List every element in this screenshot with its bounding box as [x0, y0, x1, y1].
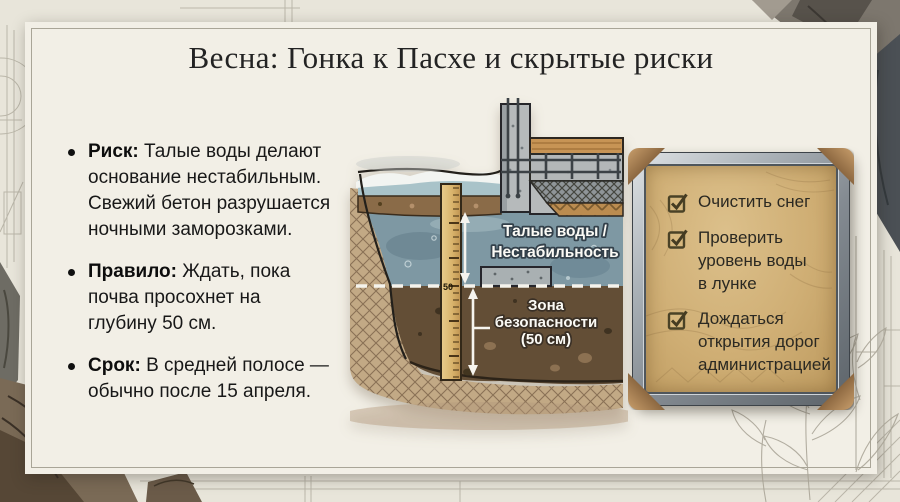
bullet-risk-line: Талые воды делают — [144, 141, 321, 162]
bullet-dot — [68, 149, 75, 156]
checkbox-checked-icon — [666, 227, 689, 250]
bullet-rule-line: глубину 50 см. — [88, 313, 216, 334]
bullet-risk-label: Риск: — [88, 141, 139, 162]
ruler-mark-50: 50 — [443, 282, 453, 292]
soil-pit — [390, 286, 623, 384]
zone-label-line2: безопасности — [495, 314, 598, 331]
ice-band — [356, 156, 502, 198]
bullet-list: Риск: Талые воды делают основание нестаб… — [64, 139, 356, 421]
water-label-line2: Нестабильность — [491, 244, 618, 261]
soil-cross-section-diagram: 50 Талые воды / Нестабильность Зона безо… — [350, 96, 628, 440]
checkbox-checked-icon — [666, 191, 689, 214]
checkbox-checked-icon — [666, 308, 689, 331]
check-label: Дождаться открытия дорог администрацией — [698, 307, 831, 376]
bullet-dot — [68, 363, 75, 370]
ground-soft-edge — [350, 402, 628, 430]
bullet-risk-line: ночными заморозками. — [88, 219, 292, 240]
slide-title: Весна: Гонка к Пасхе и скрытые риски — [25, 40, 877, 76]
checklist-plaque: Очистить снег Проверить уровень воды в л… — [632, 152, 850, 406]
water-label-line1: Талые воды / — [503, 223, 608, 240]
concrete-slab — [530, 154, 623, 181]
slide: Весна: Гонка к Пасхе и скрытые риски Рис… — [0, 0, 900, 502]
zone-label-line3: (50 см) — [521, 331, 571, 348]
check-label: Очистить снег — [698, 190, 810, 214]
bullet-risk-line: основание нестабильным. — [88, 167, 321, 188]
foundation-structure — [501, 98, 623, 216]
bullet-term-line: обычно после 15 апреля. — [88, 381, 311, 402]
check-item-water-level: Проверить уровень воды в лунке — [666, 226, 830, 295]
gravel-layer — [530, 181, 623, 203]
check-item-roads: Дождаться открытия дорог администрацией — [666, 307, 830, 376]
bullet-risk-line: Свежий бетон разрушается — [88, 193, 330, 214]
checklist: Очистить снег Проверить уровень воды в л… — [666, 190, 830, 388]
zone-label-line1: Зона — [528, 297, 565, 314]
ruler: 50 — [441, 184, 461, 380]
concrete-footing — [481, 267, 551, 286]
bullet-dot — [68, 269, 75, 276]
wood-plank — [530, 138, 623, 154]
check-label: Проверить уровень воды в лунке — [698, 226, 807, 295]
bullet-rule-label: Правило: — [88, 261, 177, 282]
bullet-rule-line: почва просохнет на — [88, 287, 261, 308]
bullet-term-line: В средней полосе — — [146, 355, 329, 376]
parchment-panel: Очистить снег Проверить уровень воды в л… — [646, 166, 836, 392]
bullet-term-label: Срок: — [88, 355, 141, 376]
bullet-rule: Правило: Ждать, пока почва просохнет на … — [64, 259, 356, 337]
herringbone-wood-strip — [547, 203, 623, 216]
check-item-snow: Очистить снег — [666, 190, 830, 214]
bullet-risk: Риск: Талые воды делают основание нестаб… — [64, 139, 356, 243]
bullet-term: Срок: В средней полосе — обычно после 15… — [64, 353, 356, 405]
bullet-rule-line: Ждать, пока — [182, 261, 290, 282]
topsoil-band — [358, 196, 501, 216]
